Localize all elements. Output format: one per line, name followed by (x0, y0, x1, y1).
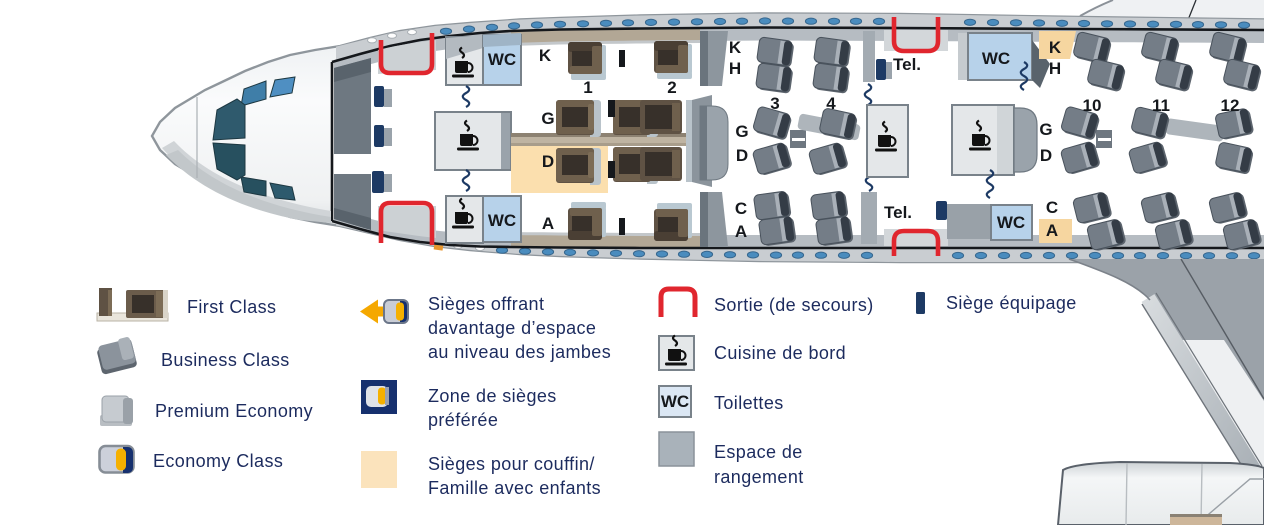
svg-text:3: 3 (770, 94, 779, 113)
svg-text:G: G (541, 109, 554, 128)
svg-text:4: 4 (826, 94, 836, 113)
svg-text:WC: WC (982, 49, 1010, 68)
svg-text:Sortie (de secours): Sortie (de secours) (714, 295, 874, 315)
svg-text:Premium Economy: Premium Economy (155, 401, 313, 421)
svg-text:WC: WC (661, 392, 689, 411)
svg-text:K: K (729, 38, 742, 57)
svg-text:Zone de sièges: Zone de sièges (428, 386, 557, 406)
svg-text:10: 10 (1083, 96, 1102, 115)
svg-text:Famille avec enfants: Famille avec enfants (428, 478, 601, 498)
svg-text:C: C (1046, 198, 1058, 217)
svg-text:Toilettes: Toilettes (714, 393, 784, 413)
svg-text:First Class: First Class (187, 297, 276, 317)
svg-text:2: 2 (667, 78, 676, 97)
svg-text:G: G (1039, 120, 1052, 139)
svg-text:G: G (735, 122, 748, 141)
svg-text:H: H (1049, 59, 1061, 78)
svg-text:D: D (542, 152, 554, 171)
svg-text:1: 1 (583, 78, 592, 97)
svg-text:WC: WC (488, 211, 516, 230)
svg-text:Siège équipage: Siège équipage (946, 293, 1077, 313)
svg-text:A: A (542, 214, 554, 233)
svg-text:K: K (539, 46, 552, 65)
svg-text:davantage d’espace: davantage d’espace (428, 318, 596, 338)
svg-text:Tel.: Tel. (884, 203, 912, 222)
svg-text:préférée: préférée (428, 410, 498, 430)
svg-text:12: 12 (1221, 96, 1240, 115)
svg-text:Economy Class: Economy Class (153, 451, 283, 471)
svg-text:K: K (1049, 38, 1062, 57)
svg-text:WC: WC (997, 213, 1025, 232)
svg-text:WC: WC (488, 50, 516, 69)
svg-text:C: C (735, 199, 747, 218)
svg-text:H: H (729, 59, 741, 78)
svg-text:D: D (1040, 146, 1052, 165)
svg-text:11: 11 (1152, 96, 1170, 115)
svg-text:Sièges pour couffin/: Sièges pour couffin/ (428, 454, 595, 474)
svg-text:A: A (735, 222, 747, 241)
svg-text:Cuisine de bord: Cuisine de bord (714, 343, 846, 363)
svg-text:A: A (1046, 221, 1058, 240)
svg-text:D: D (736, 146, 748, 165)
svg-text:Business Class: Business Class (161, 350, 290, 370)
svg-text:au niveau des jambes: au niveau des jambes (428, 342, 611, 362)
svg-text:Tel.: Tel. (893, 55, 921, 74)
svg-text:Espace de: Espace de (714, 442, 803, 462)
svg-text:Sièges offrant: Sièges offrant (428, 294, 544, 314)
svg-text:rangement: rangement (714, 467, 804, 487)
